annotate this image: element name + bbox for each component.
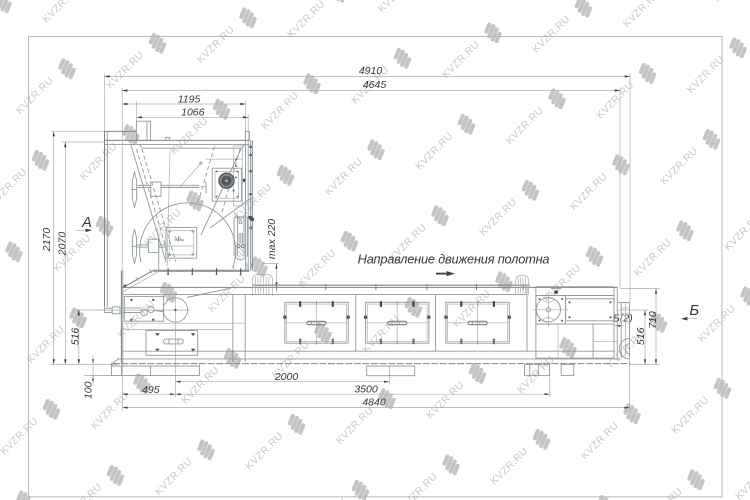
svg-text:3500: 3500 (354, 384, 378, 396)
svg-text:KVZR.RU: KVZR.RU (153, 456, 195, 498)
svg-text:1066: 1066 (181, 107, 205, 119)
svg-text:KVZR.RU: KVZR.RU (180, 365, 222, 407)
svg-text:KVZR.RU: KVZR.RU (712, 0, 750, 4)
svg-text:KVZR.RU: KVZR.RU (206, 273, 248, 315)
svg-text:KVZR.RU: KVZR.RU (531, 14, 573, 56)
svg-text:KVZR.RU: KVZR.RU (334, 405, 376, 447)
svg-text:Б: Б (689, 302, 699, 319)
svg-text:4910: 4910 (359, 65, 383, 77)
svg-text:2000: 2000 (274, 371, 299, 383)
svg-text:495: 495 (142, 384, 160, 396)
svg-text:KVZR.RU: KVZR.RU (286, 0, 328, 40)
svg-text:KVZR.RU: KVZR.RU (259, 90, 301, 132)
svg-text:KVZR.RU: KVZR.RU (621, 0, 663, 30)
svg-text:KVZR.RU: KVZR.RU (568, 171, 610, 213)
svg-text:KVZR.RU: KVZR.RU (723, 212, 750, 254)
svg-text:KVZR.RU: KVZR.RU (425, 380, 467, 422)
svg-text:KVZR.RU: KVZR.RU (659, 146, 701, 188)
svg-text:KVZR.RU: KVZR.RU (579, 420, 621, 462)
svg-text:KVZR.RU: KVZR.RU (105, 50, 147, 92)
svg-text:KVZR.RU: KVZR.RU (41, 0, 83, 25)
svg-text:KVZR.RU: KVZR.RU (323, 156, 365, 198)
svg-text:KVZR.RU: KVZR.RU (414, 131, 456, 173)
svg-text:4645: 4645 (363, 79, 387, 91)
svg-text:KVZR.RU: KVZR.RU (89, 390, 131, 432)
svg-text:2070: 2070 (57, 232, 69, 257)
svg-text:KVZR.RU: KVZR.RU (195, 24, 237, 66)
svg-text:KVZR.RU: KVZR.RU (116, 299, 158, 341)
svg-text:KVZR.RU: KVZR.RU (0, 416, 41, 458)
svg-text:KVZR.RU: KVZR.RU (440, 39, 482, 81)
svg-text:KVZR.RU: KVZR.RU (297, 248, 339, 290)
svg-text:KVZR.RU: KVZR.RU (643, 486, 685, 500)
svg-text:KVZR.RU: KVZR.RU (696, 303, 738, 345)
svg-text:KVZR.RU: KVZR.RU (734, 461, 750, 500)
svg-text:710: 710 (647, 311, 659, 329)
svg-text:KVZR.RU: KVZR.RU (0, 167, 30, 209)
svg-text:KVZR.RU: KVZR.RU (14, 75, 56, 117)
svg-text:100: 100 (82, 381, 94, 399)
svg-text:KVZR.RU: KVZR.RU (632, 237, 674, 279)
svg-text:1195: 1195 (178, 94, 201, 106)
svg-text:516: 516 (635, 327, 647, 345)
svg-text:Направление движения полотна: Направление движения полотна (358, 252, 550, 267)
svg-text:4840: 4840 (362, 397, 386, 409)
svg-text:max 220: max 220 (266, 219, 278, 259)
svg-text:KVZR.RU: KVZR.RU (0, 258, 3, 300)
svg-text:KVZR.RU: KVZR.RU (489, 446, 531, 488)
svg-text:KVZR.RU: KVZR.RU (376, 0, 418, 15)
svg-text:2170: 2170 (41, 228, 53, 253)
svg-text:KVZR.RU: KVZR.RU (478, 197, 520, 239)
svg-text:KVZR.RU: KVZR.RU (78, 141, 120, 183)
svg-text:KVZR.RU: KVZR.RU (398, 471, 440, 500)
svg-text:KVZR.RU: KVZR.RU (169, 116, 211, 158)
svg-text:516: 516 (69, 328, 81, 346)
svg-text:KVZR.RU: KVZR.RU (515, 354, 557, 396)
svg-text:KVZR.RU: KVZR.RU (670, 395, 712, 437)
svg-text:KVZR.RU: KVZR.RU (504, 105, 546, 147)
svg-text:KVZR.RU: KVZR.RU (244, 431, 286, 473)
svg-text:KVZR.RU: KVZR.RU (25, 324, 67, 366)
svg-text:KVZR.RU: KVZR.RU (685, 54, 727, 96)
svg-text:А: А (81, 215, 92, 231)
